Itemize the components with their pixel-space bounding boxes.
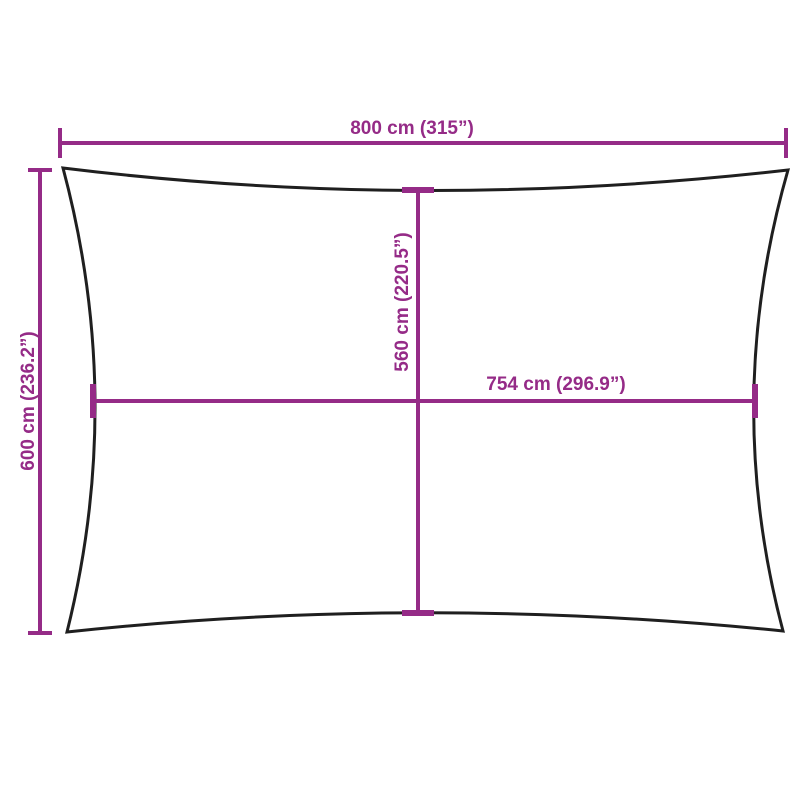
height-dimension: 600 cm (236.2”) — [18, 170, 52, 633]
dimension-diagram-svg: 800 cm (315”) 600 cm (236.2”) 560 cm (22… — [0, 0, 800, 800]
inner-width-dimension: 754 cm (296.9”) — [93, 374, 755, 418]
height-dimension-label: 600 cm (236.2”) — [18, 331, 39, 470]
width-dimension: 800 cm (315”) — [60, 118, 786, 158]
product-dimension-diagram: 800 cm (315”) 600 cm (236.2”) 560 cm (22… — [0, 0, 800, 800]
inner-width-dimension-label: 754 cm (296.9”) — [486, 374, 625, 395]
inner-height-dimension-label: 560 cm (220.5”) — [392, 232, 413, 371]
width-dimension-label: 800 cm (315”) — [350, 118, 474, 139]
